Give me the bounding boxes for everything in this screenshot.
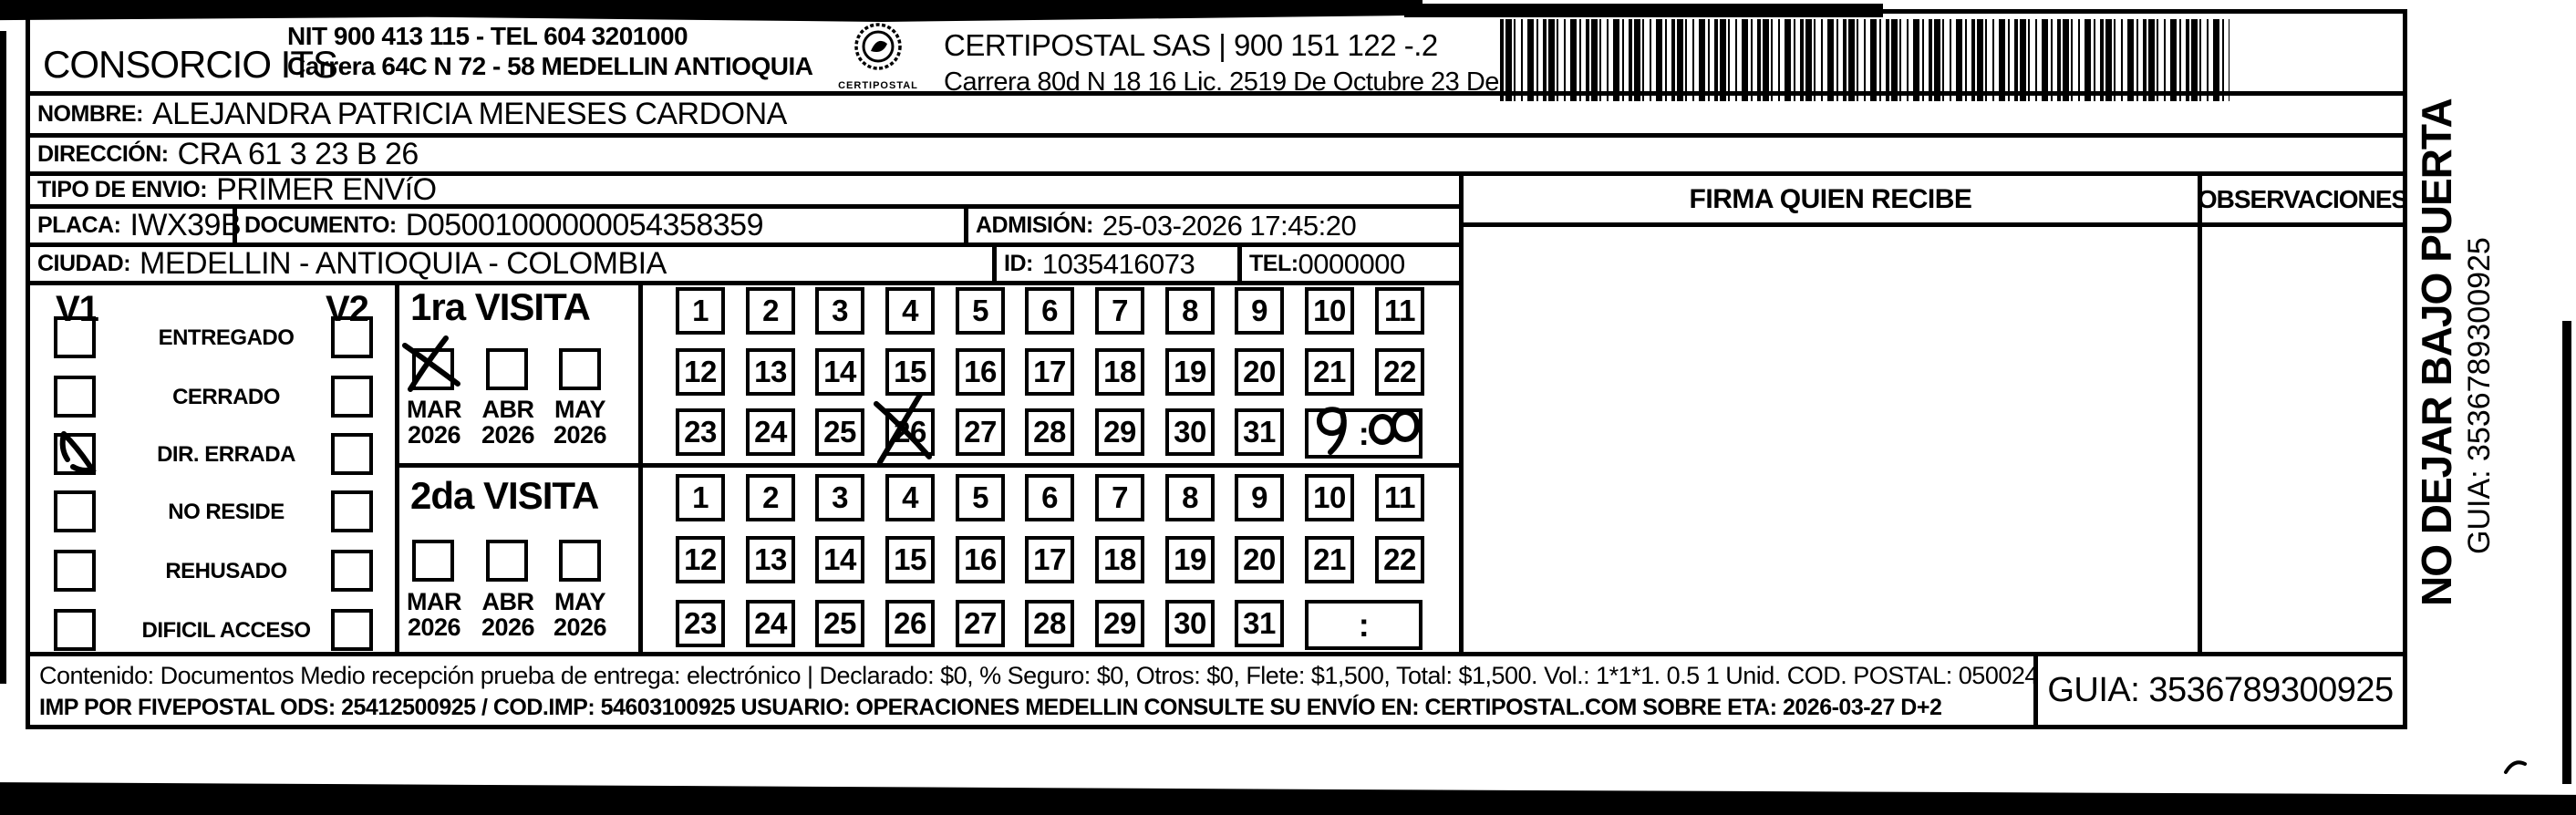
middle-section: TIPO DE ENVIO: PRIMER ENVíO PLACA: IWX39…	[30, 171, 2403, 652]
visit1-day-cell: 5	[956, 287, 1005, 335]
visit1-day-cell: 10	[1305, 287, 1354, 335]
scan-pen-tick	[2506, 762, 2525, 772]
ciudad-label: CIUDAD:	[37, 251, 130, 277]
nombre-row: NOMBRE: ALEJANDRA PATRICIA MENESES CARDO…	[30, 91, 2403, 133]
tel-label: TEL:	[1249, 251, 1298, 277]
v2-checkbox-dificil-acceso	[331, 609, 373, 651]
scan-artifact-top	[1404, 4, 1883, 17]
visit2-day-cell: 5	[956, 474, 1005, 521]
ciudad-value: MEDELLIN - ANTIOQUIA - COLOMBIA	[140, 246, 667, 282]
logo-caption: CERTIPOSTAL	[833, 80, 924, 91]
month-label: MAR 2026	[401, 589, 467, 640]
v1-checkbox-cerrado	[54, 376, 96, 418]
visit2-day-cell: 11	[1375, 474, 1424, 521]
company-nit-line: NIT 900 413 115 - TEL 604 3201000	[287, 21, 812, 51]
shipment-detail-section: TIPO DE ENVIO: PRIMER ENVíO PLACA: IWX39…	[30, 176, 1464, 652]
visit1-day-cell: 16	[956, 348, 1005, 396]
visit2-day-cell: 9	[1235, 474, 1284, 521]
tipo-envio-row: TIPO DE ENVIO: PRIMER ENVíO	[30, 176, 1459, 209]
visit1-day-cell: 1	[676, 287, 725, 335]
carrier-info: CERTIPOSTAL SAS | 900 151 122 -.2 Carrer…	[944, 28, 1563, 98]
visit2-day-cell: 10	[1305, 474, 1354, 521]
visit1-day-cell: 21	[1305, 348, 1354, 396]
v2-checkbox-cerrado	[331, 376, 373, 418]
seal-icon	[850, 21, 906, 77]
documento-value: D05001000000054358359	[406, 208, 763, 243]
visit2-day-cell: 25	[815, 600, 864, 647]
visit2-day-cell: 28	[1025, 600, 1074, 647]
month-label: MAR 2026	[401, 397, 467, 448]
documento-cell: DOCUMENTO: D05001000000054358359	[237, 209, 968, 242]
direccion-row: DIRECCIÓN: CRA 61 3 23 B 26	[30, 133, 2403, 171]
visit2-day-cell: 17	[1025, 536, 1074, 583]
visit1-day-cell: 26	[885, 408, 935, 456]
visit2-day-cell: 29	[1095, 600, 1144, 647]
status-option-label: DIR. ERRADA	[129, 442, 324, 468]
firma-header: FIRMA QUIEN RECIBE	[1464, 176, 2198, 227]
visit1-day-cell: 31	[1235, 408, 1284, 456]
visit1-day-cell: 23	[676, 408, 725, 456]
barcode	[1500, 19, 2229, 101]
visit1-day-cell: 13	[746, 348, 795, 396]
nombre-label: NOMBRE:	[37, 101, 143, 128]
visit2-day-cell: 21	[1305, 536, 1354, 583]
v2-checkbox-no-reside	[331, 490, 373, 532]
documento-label: DOCUMENTO:	[244, 212, 397, 239]
visit2-day-cell: 18	[1095, 536, 1144, 583]
month-label: ABR 2026	[475, 589, 541, 640]
scan-artifact-left-edge	[0, 31, 6, 684]
second-visit-title: 2da VISITA	[410, 474, 598, 518]
visit-divider	[399, 463, 1464, 468]
v1-checkbox-dificil-acceso	[54, 609, 96, 651]
id-label: ID:	[1004, 251, 1033, 277]
tel-cell: TEL: 0000000	[1242, 247, 1459, 281]
visit2-day-cell: 20	[1235, 536, 1284, 583]
admision-label: ADMISIÓN:	[976, 212, 1093, 239]
visit2-month-may-checkbox	[559, 540, 601, 582]
visit1-day-cell: 7	[1095, 287, 1144, 335]
v1-checkbox-dir-errada	[54, 433, 96, 475]
status-option-label: DIFICIL ACCESO	[129, 618, 324, 644]
side-warning-text: NO DEJAR BAJO PUERTA	[2412, 123, 2459, 606]
observaciones-header: OBSERVACIONES	[2202, 176, 2403, 227]
status-option-label: CERRADO	[129, 385, 324, 410]
footer-band: Contenido: Documentos Medio recepción pr…	[30, 652, 2403, 725]
visit2-day-cell: 12	[676, 536, 725, 583]
company-address-line: Carrera 64C N 72 - 58 MEDELLIN ANTIOQUIA	[287, 51, 812, 81]
visit1-day-cell: 3	[815, 287, 864, 335]
visit2-day-cell: 1	[676, 474, 725, 521]
company-info: NIT 900 413 115 - TEL 604 3201000 Carrer…	[287, 21, 812, 81]
id-cell: ID: 1035416073	[997, 247, 1242, 281]
visit2-day-cell: 30	[1165, 600, 1215, 647]
v2-checkbox-entregado	[331, 316, 373, 358]
visit1-day-cell: 28	[1025, 408, 1074, 456]
visit1-day-cell: 30	[1165, 408, 1215, 456]
direccion-value: CRA 61 3 23 B 26	[178, 137, 419, 172]
visit1-day-cell: 12	[676, 348, 725, 396]
status-option-label: NO RESIDE	[129, 500, 324, 525]
visit2-day-cell: 4	[885, 474, 935, 521]
visit1-day-cell: 18	[1095, 348, 1144, 396]
visit1-day-cell: 20	[1235, 348, 1284, 396]
scan-artifact-right-edge	[2562, 321, 2571, 784]
visit1-month-may-checkbox	[559, 348, 601, 390]
placa-cell: PLACA: IWX39B	[30, 209, 237, 242]
visit1-day-cell: 11	[1375, 287, 1424, 335]
visits-section: V1 V2 ENTREGADO CERRADO DIR. ERRADA NO R…	[30, 285, 1459, 656]
tel-value: 0000000	[1298, 248, 1405, 281]
visit1-day-cell: 24	[746, 408, 795, 456]
observaciones-divider	[2198, 176, 2202, 652]
carrier-name-line: CERTIPOSTAL SAS | 900 151 122 -.2	[944, 28, 1563, 63]
visit2-day-cell: 22	[1375, 536, 1424, 583]
visit1-day-cell: 15	[885, 348, 935, 396]
month-label: MAY 2026	[547, 589, 613, 640]
status-option-label: ENTREGADO	[129, 325, 324, 351]
visit2-day-cell: 7	[1095, 474, 1144, 521]
visit2-day-cell: 24	[746, 600, 795, 647]
footer-imp-line: IMP POR FIVEPOSTAL ODS: 25412500925 / CO…	[39, 695, 2033, 721]
signature-section: FIRMA QUIEN RECIBE OBSERVACIONES	[1464, 176, 2403, 652]
visit2-day-cell: 31	[1235, 600, 1284, 647]
visit1-day-cell: 2	[746, 287, 795, 335]
scan-artifact-bottom	[0, 773, 2576, 815]
visit1-day-cell: 19	[1165, 348, 1215, 396]
ciudad-row: CIUDAD: MEDELLIN - ANTIOQUIA - COLOMBIA …	[30, 247, 1459, 285]
v2-checkbox-dir-errada	[331, 433, 373, 475]
visit2-day-cell: 26	[885, 600, 935, 647]
visit2-day-cell: 14	[815, 536, 864, 583]
v2-checkbox-rehusado	[331, 550, 373, 592]
month-label: ABR 2026	[475, 397, 541, 448]
id-value: 1035416073	[1042, 248, 1195, 281]
visit1-day-cell: 25	[815, 408, 864, 456]
visit1-time-box: :	[1305, 408, 1422, 459]
guia-number-box: GUIA: 3536789300925	[2038, 656, 2403, 725]
placa-label: PLACA:	[37, 212, 120, 239]
v1-checkbox-entregado	[54, 316, 96, 358]
month-label: MAY 2026	[547, 397, 613, 448]
nombre-value: ALEJANDRA PATRICIA MENESES CARDONA	[152, 97, 787, 132]
visit2-day-cell: 27	[956, 600, 1005, 647]
visit2-month-abr-checkbox	[486, 540, 528, 582]
visit2-time-box: :	[1305, 600, 1422, 650]
visit1-day-cell: 8	[1165, 287, 1215, 335]
visit1-day-cell: 22	[1375, 348, 1424, 396]
visit1-day-cell: 14	[815, 348, 864, 396]
visit1-day-cell: 29	[1095, 408, 1144, 456]
tipo-envio-value: PRIMER ENVíO	[216, 172, 436, 208]
form-frame: CONSORCIO ITS NIT 900 413 115 - TEL 604 …	[26, 9, 2407, 729]
visit2-day-cell: 2	[746, 474, 795, 521]
visit2-day-cell: 15	[885, 536, 935, 583]
visit1-day-cell: 27	[956, 408, 1005, 456]
visit2-month-mar-checkbox	[412, 540, 454, 582]
tipo-envio-label: TIPO DE ENVIO:	[37, 177, 207, 203]
visit2-day-cell: 8	[1165, 474, 1215, 521]
visit2-day-cell: 3	[815, 474, 864, 521]
certipostal-logo: CERTIPOSTAL	[833, 21, 924, 96]
visit2-day-cell: 16	[956, 536, 1005, 583]
visit1-day-cell: 17	[1025, 348, 1074, 396]
v1-checkbox-no-reside	[54, 490, 96, 532]
placa-value: IWX39B	[129, 208, 241, 243]
status-option-label: REHUSADO	[129, 559, 324, 584]
ciudad-cell: CIUDAD: MEDELLIN - ANTIOQUIA - COLOMBIA	[30, 247, 997, 281]
footer-content-line: Contenido: Documentos Medio recepción pr…	[39, 662, 2033, 690]
visit-month-column: 1ra VISITA MAR 2026 ABR 2026	[399, 285, 643, 656]
delivery-status-box: V1 V2 ENTREGADO CERRADO DIR. ERRADA NO R…	[30, 285, 399, 656]
v1-checkbox-rehusado	[54, 550, 96, 592]
visit1-day-cell: 4	[885, 287, 935, 335]
visit1-day-cell: 9	[1235, 287, 1284, 335]
visit1-month-mar-checkbox	[412, 348, 454, 390]
direccion-label: DIRECCIÓN:	[37, 141, 169, 168]
visit2-day-cell: 23	[676, 600, 725, 647]
admision-value: 25-03-2026 17:45:20	[1102, 210, 1356, 242]
visit2-day-cell: 6	[1025, 474, 1074, 521]
visit2-day-cell: 19	[1165, 536, 1215, 583]
visit1-day-cell: 6	[1025, 287, 1074, 335]
side-guia-text: GUIA: 3536789300925	[2462, 190, 2498, 554]
placa-row: PLACA: IWX39B DOCUMENTO: D05001000000054…	[30, 209, 1459, 247]
visit1-month-abr-checkbox	[486, 348, 528, 390]
admision-cell: ADMISIÓN: 25-03-2026 17:45:20	[968, 209, 1459, 242]
footer-details: Contenido: Documentos Medio recepción pr…	[30, 656, 2038, 725]
first-visit-title: 1ra VISITA	[410, 285, 590, 329]
visit2-day-cell: 13	[746, 536, 795, 583]
